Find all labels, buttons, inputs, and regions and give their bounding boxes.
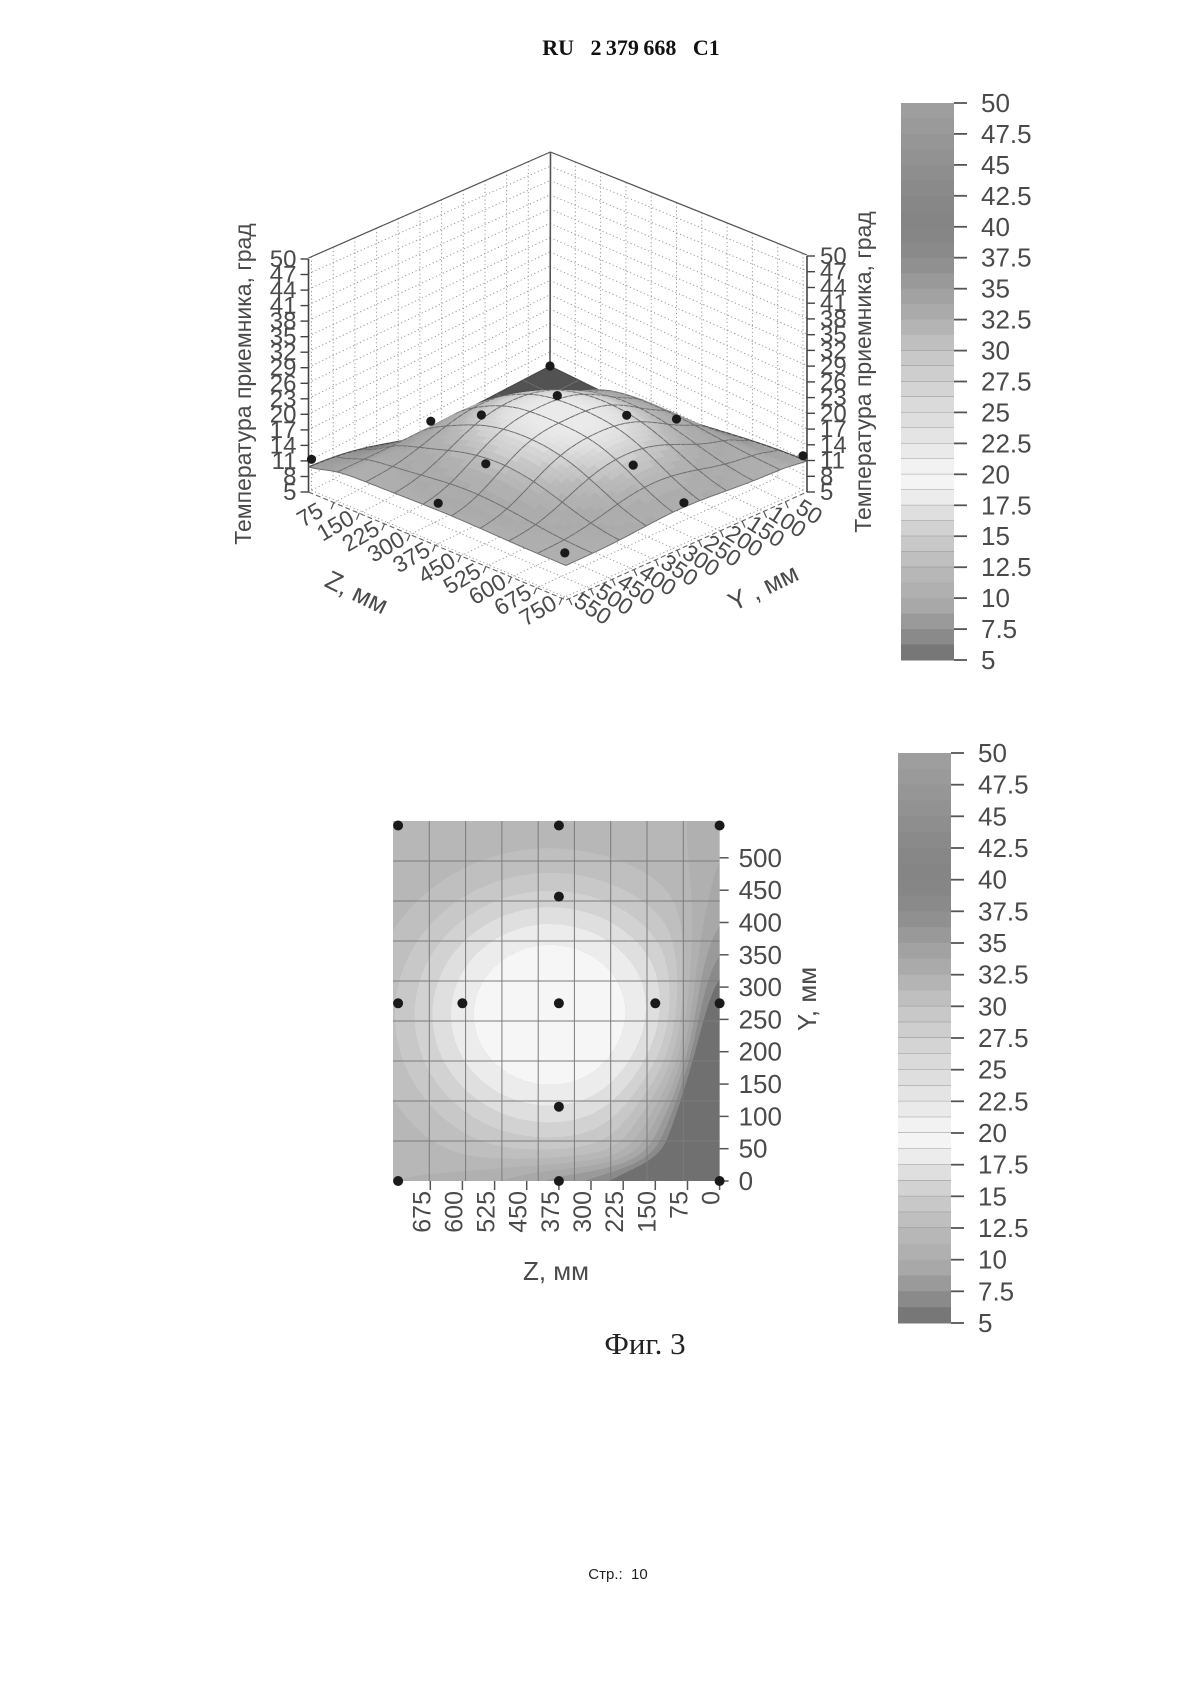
- svg-text:30: 30: [978, 991, 1007, 1021]
- svg-text:300: 300: [739, 972, 782, 1002]
- svg-text:Температура приемника, град: Температура приемника, град: [850, 211, 876, 533]
- svg-text:450: 450: [739, 875, 782, 905]
- svg-text:32.5: 32.5: [978, 960, 1029, 990]
- svg-text:47.5: 47.5: [978, 770, 1029, 800]
- svg-text:10: 10: [978, 1245, 1007, 1275]
- svg-text:17.5: 17.5: [978, 1150, 1029, 1180]
- svg-text:47.5: 47.5: [981, 119, 1032, 149]
- svg-text:25: 25: [978, 1055, 1007, 1085]
- svg-text:32.5: 32.5: [981, 305, 1032, 335]
- svg-text:400: 400: [739, 908, 782, 938]
- svg-text:0: 0: [698, 1191, 726, 1205]
- svg-text:450: 450: [505, 1191, 533, 1233]
- svg-text:37.5: 37.5: [978, 896, 1029, 926]
- svg-text:150: 150: [739, 1069, 782, 1099]
- svg-text:42.5: 42.5: [978, 833, 1029, 863]
- svg-text:35: 35: [978, 928, 1007, 958]
- svg-text:7.5: 7.5: [981, 614, 1017, 644]
- svg-text:Z, мм: Z, мм: [523, 1256, 589, 1286]
- svg-text:250: 250: [739, 1004, 782, 1034]
- svg-text:15: 15: [978, 1181, 1007, 1211]
- svg-text:45: 45: [981, 150, 1010, 180]
- svg-text:12.5: 12.5: [978, 1213, 1029, 1243]
- svg-text:27.5: 27.5: [981, 367, 1032, 397]
- svg-text:22.5: 22.5: [978, 1086, 1029, 1116]
- svg-text:17.5: 17.5: [981, 490, 1032, 520]
- svg-text:350: 350: [739, 940, 782, 970]
- svg-text:5: 5: [981, 645, 995, 675]
- svg-text:200: 200: [739, 1037, 782, 1067]
- svg-text:50: 50: [978, 738, 1007, 768]
- svg-text:525: 525: [473, 1191, 501, 1233]
- svg-text:22.5: 22.5: [981, 428, 1032, 458]
- svg-text:Температура приемника, град: Температура приемника, град: [230, 223, 256, 545]
- svg-text:375: 375: [537, 1191, 565, 1233]
- svg-text:225: 225: [601, 1191, 629, 1233]
- svg-text:45: 45: [978, 801, 1007, 831]
- svg-text:600: 600: [440, 1191, 468, 1233]
- svg-text:30: 30: [981, 336, 1010, 366]
- svg-text:500: 500: [739, 843, 782, 873]
- svg-text:300: 300: [569, 1191, 597, 1233]
- svg-text:15: 15: [981, 521, 1010, 551]
- svg-text:675: 675: [408, 1191, 436, 1233]
- svg-text:20: 20: [978, 1118, 1007, 1148]
- svg-text:42.5: 42.5: [981, 181, 1032, 211]
- svg-text:75: 75: [666, 1191, 694, 1219]
- svg-text:27.5: 27.5: [978, 1023, 1029, 1053]
- svg-text:5: 5: [978, 1308, 992, 1338]
- svg-text:50: 50: [739, 1134, 768, 1164]
- svg-text:40: 40: [978, 865, 1007, 895]
- svg-text:7.5: 7.5: [978, 1276, 1014, 1306]
- svg-text:100: 100: [739, 1101, 782, 1131]
- svg-text:20: 20: [981, 459, 1010, 489]
- svg-text:35: 35: [981, 274, 1010, 304]
- svg-text:0: 0: [739, 1166, 753, 1196]
- svg-text:50: 50: [981, 88, 1010, 118]
- svg-text:Y, мм: Y, мм: [792, 967, 822, 1031]
- svg-text:12.5: 12.5: [981, 552, 1032, 582]
- svg-text:5: 5: [283, 479, 296, 506]
- svg-text:25: 25: [981, 397, 1010, 427]
- svg-text:40: 40: [981, 212, 1010, 242]
- svg-text:150: 150: [633, 1191, 661, 1233]
- svg-text:37.5: 37.5: [981, 243, 1032, 273]
- svg-text:10: 10: [981, 583, 1010, 613]
- svg-text:Z, мм: Z, мм: [321, 564, 394, 620]
- svg-text:5: 5: [820, 479, 833, 506]
